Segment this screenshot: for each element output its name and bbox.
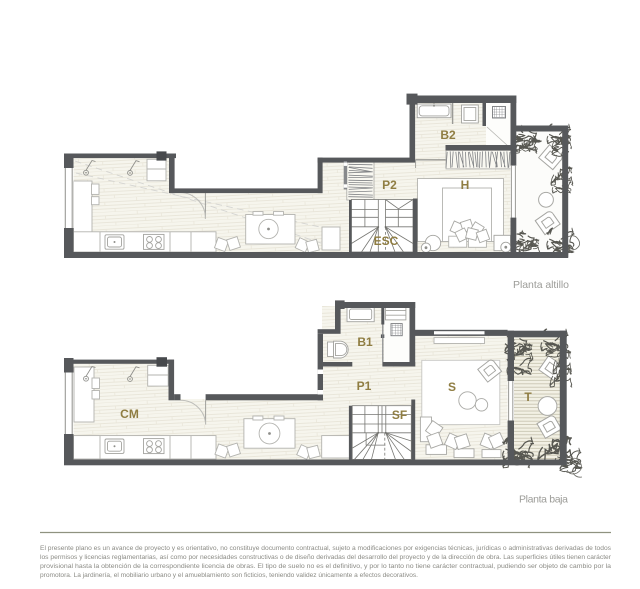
svg-text:provisional hasta la obtención: provisional hasta la obtención de la cor… bbox=[40, 563, 611, 570]
svg-text:B1: B1 bbox=[357, 335, 373, 349]
svg-text:Planta altillo: Planta altillo bbox=[513, 279, 569, 291]
svg-text:H: H bbox=[461, 178, 470, 192]
svg-text:SF: SF bbox=[392, 408, 407, 422]
svg-text:El presente plano es un avance: El presente plano es un avance de proyec… bbox=[40, 545, 612, 552]
svg-text:P1: P1 bbox=[357, 379, 372, 393]
svg-text:B2: B2 bbox=[440, 128, 456, 142]
svg-text:T: T bbox=[524, 390, 532, 404]
svg-text:S: S bbox=[448, 380, 456, 394]
svg-text:promotora. La jardinería, el m: promotora. La jardinería, el mobiliario … bbox=[40, 572, 418, 579]
svg-text:CM: CM bbox=[120, 407, 139, 421]
svg-text:Planta baja: Planta baja bbox=[519, 494, 568, 506]
svg-text:los permisos y licencias regla: los permisos y licencias reglamentarias,… bbox=[40, 554, 612, 561]
svg-text:P2: P2 bbox=[382, 178, 397, 192]
svg-text:ESC: ESC bbox=[374, 234, 399, 248]
